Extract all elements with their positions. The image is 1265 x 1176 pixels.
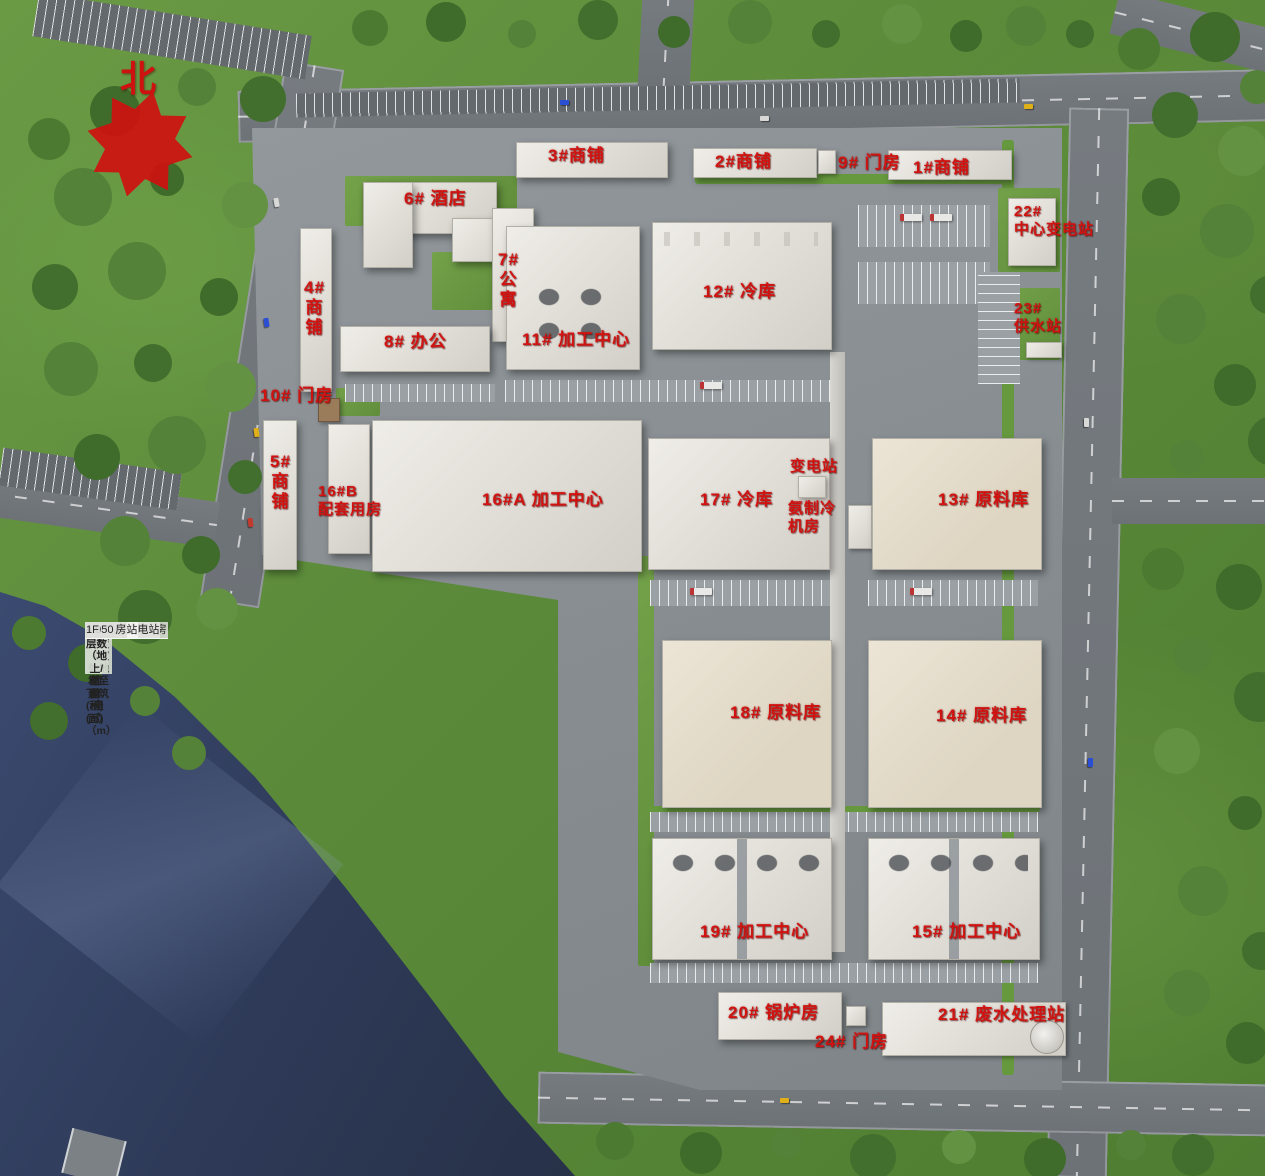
label-gatehouse10: 10# 门房 — [260, 386, 333, 406]
label-coldstore12: 12# 冷库 — [703, 282, 776, 302]
trees-river-bank — [12, 616, 46, 650]
parking-lot — [345, 384, 495, 402]
label-16A: 16#A 加工中心 — [482, 490, 604, 510]
wastewater-tank — [1030, 1020, 1064, 1054]
car — [247, 518, 253, 528]
label-wastewater21: 21# 废水处理站 — [938, 1005, 1065, 1025]
label-office8: 8# 办公 — [384, 332, 447, 352]
car — [1024, 104, 1033, 109]
car — [760, 116, 769, 121]
building-waterstation23 — [1026, 342, 1062, 358]
car — [780, 1098, 789, 1103]
label-apartment7: 7# 公 寓 — [498, 250, 519, 310]
building-gatehouse9 — [818, 150, 836, 174]
trees-northeast-park — [1118, 28, 1160, 70]
label-processing15: 15# 加工中心 — [912, 922, 1021, 942]
label-ammonia17A: 氨制冷 机房 — [788, 500, 836, 536]
car — [253, 428, 259, 438]
truck — [900, 214, 922, 221]
label-gatehouse9: 9# 门房 — [838, 153, 901, 173]
label-rawmaterial14: 14# 原料库 — [936, 706, 1027, 726]
trees-north-band — [352, 10, 388, 46]
label-gatehouse24: 24# 门房 — [815, 1032, 888, 1052]
label-shop4: 4# 商 铺 — [304, 278, 325, 338]
label-boiler20: 20# 锅炉房 — [728, 1003, 819, 1023]
label-16B: 16#B 配套用房 — [318, 483, 382, 519]
label-waterstation23: 23# 供水站 — [1014, 300, 1062, 336]
road-east-stub — [1112, 478, 1265, 524]
building-substation17B — [798, 476, 826, 498]
label-shop2: 2#商铺 — [715, 152, 772, 172]
parking-lot — [858, 262, 990, 304]
truck — [910, 588, 932, 595]
truck — [930, 214, 952, 221]
label-shop3: 3#商铺 — [548, 146, 605, 166]
building-ammonia17A — [848, 505, 872, 549]
label-shop1: 1#商铺 — [913, 158, 970, 178]
truck-dock — [868, 580, 1038, 606]
roof-skylight — [664, 232, 818, 246]
label-rawmaterial13: 13# 原料库 — [938, 490, 1029, 510]
truck-dock — [650, 580, 830, 606]
label-processing11: 11# 加工中心 — [522, 330, 630, 350]
roof-vents — [878, 846, 1028, 872]
site-plan-rendering: 北 3#商铺 2#商铺 9# 门房 1#商铺 6# 酒店 7# 公 寓 4# 商… — [0, 0, 1265, 1176]
label-rawmaterial18: 18# 原料库 — [730, 703, 821, 723]
label-shop5: 5# 商 铺 — [270, 452, 291, 512]
trees-west-park — [28, 118, 70, 160]
car — [1084, 418, 1089, 427]
car — [560, 100, 569, 105]
car — [1088, 758, 1093, 767]
truck — [700, 382, 722, 389]
truck — [690, 588, 712, 595]
label-coldstore17: 17# 冷库 — [700, 490, 773, 510]
parking-lot — [858, 205, 990, 247]
street-parking — [32, 0, 311, 79]
label-processing19: 19# 加工中心 — [700, 922, 809, 942]
trees-east-band — [1142, 548, 1184, 590]
trees-south-band — [596, 1122, 634, 1160]
parking-lot — [650, 963, 1038, 983]
road-north-stub — [638, 0, 695, 91]
roof-vents — [662, 846, 820, 872]
label-substation17B: 变电站 — [790, 458, 838, 476]
building-gatehouse24 — [846, 1006, 866, 1026]
conveyor-corridor — [830, 352, 845, 952]
label-substation22: 22# 中心变电站 — [1014, 203, 1094, 239]
building-rawmaterial18 — [662, 640, 832, 808]
label-hotel6: 6# 酒店 — [404, 189, 467, 209]
parking-lot — [505, 380, 845, 402]
